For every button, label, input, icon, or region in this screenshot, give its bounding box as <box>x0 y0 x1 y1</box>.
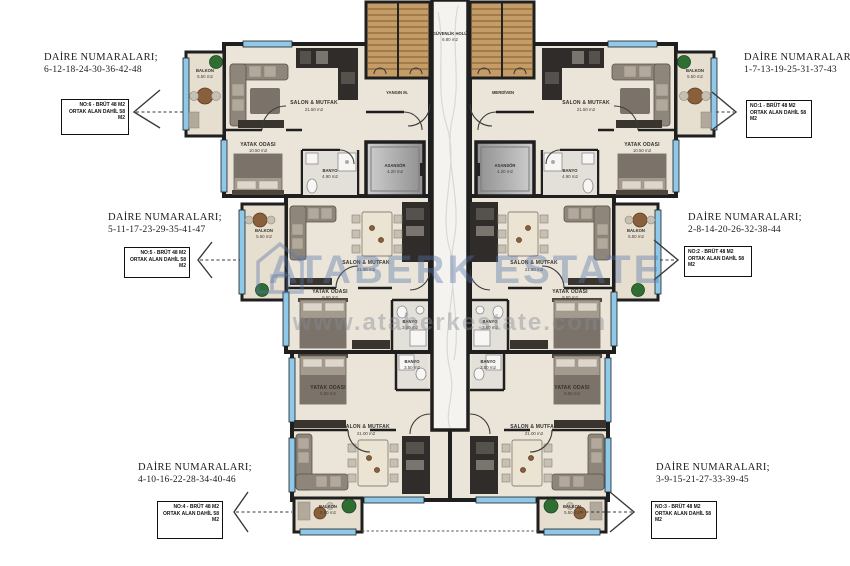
tr-yatak-area: 10.50 m2 <box>633 148 652 153</box>
annotation-box-line2: ORTAK ALAN DAHİL 58 M2 <box>655 511 713 524</box>
tr-salon: SALON & MUTFAK <box>562 100 610 106</box>
annotation-box-line2: ORTAK ALAN DAHİL 58 M2 <box>750 110 808 123</box>
watermark-url: www.ataberkestate.com <box>292 309 608 336</box>
annotation-box-bottom-left: NO:4 - BRÜT 48 M2 ORTAK ALAN DAHİL 58 M2 <box>157 501 223 539</box>
bl-banyo-area: 3.50 m2 <box>404 365 420 370</box>
annotation-box-line2: ORTAK ALAN DAHİL 58 M2 <box>161 511 219 524</box>
bl-salon-area: 21.00 m2 <box>357 431 376 436</box>
br-yatak-area: 9.50 m2 <box>564 391 580 396</box>
annotation-numbers: 1-7-13-19-25-31-37-43 <box>744 65 850 75</box>
asansor-left-area: 4.20 m2 <box>387 169 403 174</box>
tr-banyo: BANYO <box>562 168 578 173</box>
tl-banyo: BANYO <box>322 168 338 173</box>
annotation-top-left: DAİRE NUMARALARI; 6-12-18-24-30-36-42-48 <box>44 52 158 75</box>
tr-salon-area: 21.50 m2 <box>577 107 596 112</box>
br-banyo-area: 3.50 m2 <box>480 365 496 370</box>
ml-balkon: BALKON <box>255 228 273 233</box>
mr-balkon: BALKON <box>627 228 645 233</box>
br-balkon: BALKON <box>563 504 581 509</box>
tl-balkon: BALKON <box>196 68 214 73</box>
annotation-top-right: DAİRE NUMARALARI; 1-7-13-19-25-31-37-43 <box>744 52 850 75</box>
merdiven-label: MERDİVEN <box>492 90 514 95</box>
mr-balkon-area: 5.50 m2 <box>628 234 644 239</box>
guvenlik-label: GÜVENLİK HOLÜ <box>433 31 468 36</box>
annotation-numbers: 4-10-16-22-28-34-40-46 <box>138 475 252 485</box>
asansor-left-label: ASANSÖR <box>385 163 406 168</box>
annotation-numbers: 2-8-14-20-26-32-38-44 <box>688 225 802 235</box>
watermark: ATABERK ESTATE www.ataberkestate.com <box>258 244 663 336</box>
bl-balkon: BALKON <box>319 504 337 509</box>
annotation-numbers: 3-9-15-21-27-33-39-45 <box>656 475 770 485</box>
br-balkon-area: 5.50 m2 <box>564 510 580 515</box>
br-salon: SALON & MUTFAK <box>510 424 558 430</box>
annotation-box-top-left: NO:6 - BRÜT 48 M2 ORTAK ALAN DAHİL 58 M2 <box>61 99 129 135</box>
annotation-box-line2: ORTAK ALAN DAHİL 58 M2 <box>65 109 125 122</box>
floor-plan-page: GÜVENLİK HOLÜ 6.80 m2 YANGIN M. MERDİVEN… <box>0 0 850 566</box>
annotation-box-bottom-right: NO:3 - BRÜT 48 M2 ORTAK ALAN DAHİL 58 M2 <box>651 501 717 539</box>
watermark-brand: ATABERK ESTATE <box>269 248 664 292</box>
tl-banyo-area: 4.90 m2 <box>322 174 338 179</box>
tr-banyo-area: 4.90 m2 <box>562 174 578 179</box>
annotation-title: DAİRE NUMARALARI; <box>108 212 222 223</box>
annotation-box-line2: ORTAK ALAN DAHİL 58 M2 <box>688 256 748 269</box>
annotation-box-line2: ORTAK ALAN DAHİL 58 M2 <box>128 257 186 270</box>
annotation-bottom-left: DAİRE NUMARALARI; 4-10-16-22-28-34-40-46 <box>138 462 252 485</box>
yangin-label: YANGIN M. <box>386 90 408 95</box>
annotation-middle-left: DAİRE NUMARALARI; 5-11-17-23-29-35-41-47 <box>108 212 222 235</box>
tl-yatak-area: 10.50 m2 <box>249 148 268 153</box>
annotation-bottom-right: DAİRE NUMARALARI; 3-9-15-21-27-33-39-45 <box>656 462 770 485</box>
bl-salon: SALON & MUTFAK <box>342 424 390 430</box>
tr-balkon-area: 5.50 m2 <box>687 74 703 79</box>
asansor-right-label: ASANSÖR <box>495 163 516 168</box>
bl-banyo: BANYO <box>404 359 420 364</box>
annotation-box-middle-left: NO:5 - BRÜT 48 M2 ORTAK ALAN DAHİL 58 M2 <box>124 247 190 278</box>
br-banyo: BANYO <box>480 359 496 364</box>
annotation-title: DAİRE NUMARALARI; <box>688 212 802 223</box>
tl-salon: SALON & MUTFAK <box>290 100 338 106</box>
annotation-numbers: 6-12-18-24-30-36-42-48 <box>44 65 158 75</box>
bl-yatak-area: 9.50 m2 <box>320 391 336 396</box>
tr-balkon: BALKON <box>686 68 704 73</box>
br-salon-area: 21.00 m2 <box>525 431 544 436</box>
tl-balkon-area: 5.50 m2 <box>197 74 213 79</box>
annotation-box-middle-right: NO:2 - BRÜT 48 M2 ORTAK ALAN DAHİL 58 M2 <box>684 246 752 277</box>
annotation-title: DAİRE NUMARALARI; <box>744 52 850 63</box>
bl-balkon-area: 5.50 m2 <box>320 510 336 515</box>
annotation-title: DAİRE NUMARALARI; <box>44 52 158 63</box>
annotation-box-top-right: NO:1 - BRÜT 48 M2 ORTAK ALAN DAHİL 58 M2 <box>746 100 812 138</box>
ml-balkon-area: 5.50 m2 <box>256 234 272 239</box>
central-corridor <box>432 0 468 430</box>
asansor-right-area: 4.20 m2 <box>497 169 513 174</box>
guvenlik-area: 6.80 m2 <box>442 37 458 42</box>
ml-yatak-area: 9.50 m2 <box>322 295 338 300</box>
annotation-numbers: 5-11-17-23-29-35-41-47 <box>108 225 222 235</box>
tl-salon-area: 21.50 m2 <box>305 107 324 112</box>
annotation-title: DAİRE NUMARALARI; <box>656 462 770 473</box>
annotation-middle-right: DAİRE NUMARALARI; 2-8-14-20-26-32-38-44 <box>688 212 802 235</box>
mr-yatak-area: 9.50 m2 <box>562 295 578 300</box>
annotation-title: DAİRE NUMARALARI; <box>138 462 252 473</box>
